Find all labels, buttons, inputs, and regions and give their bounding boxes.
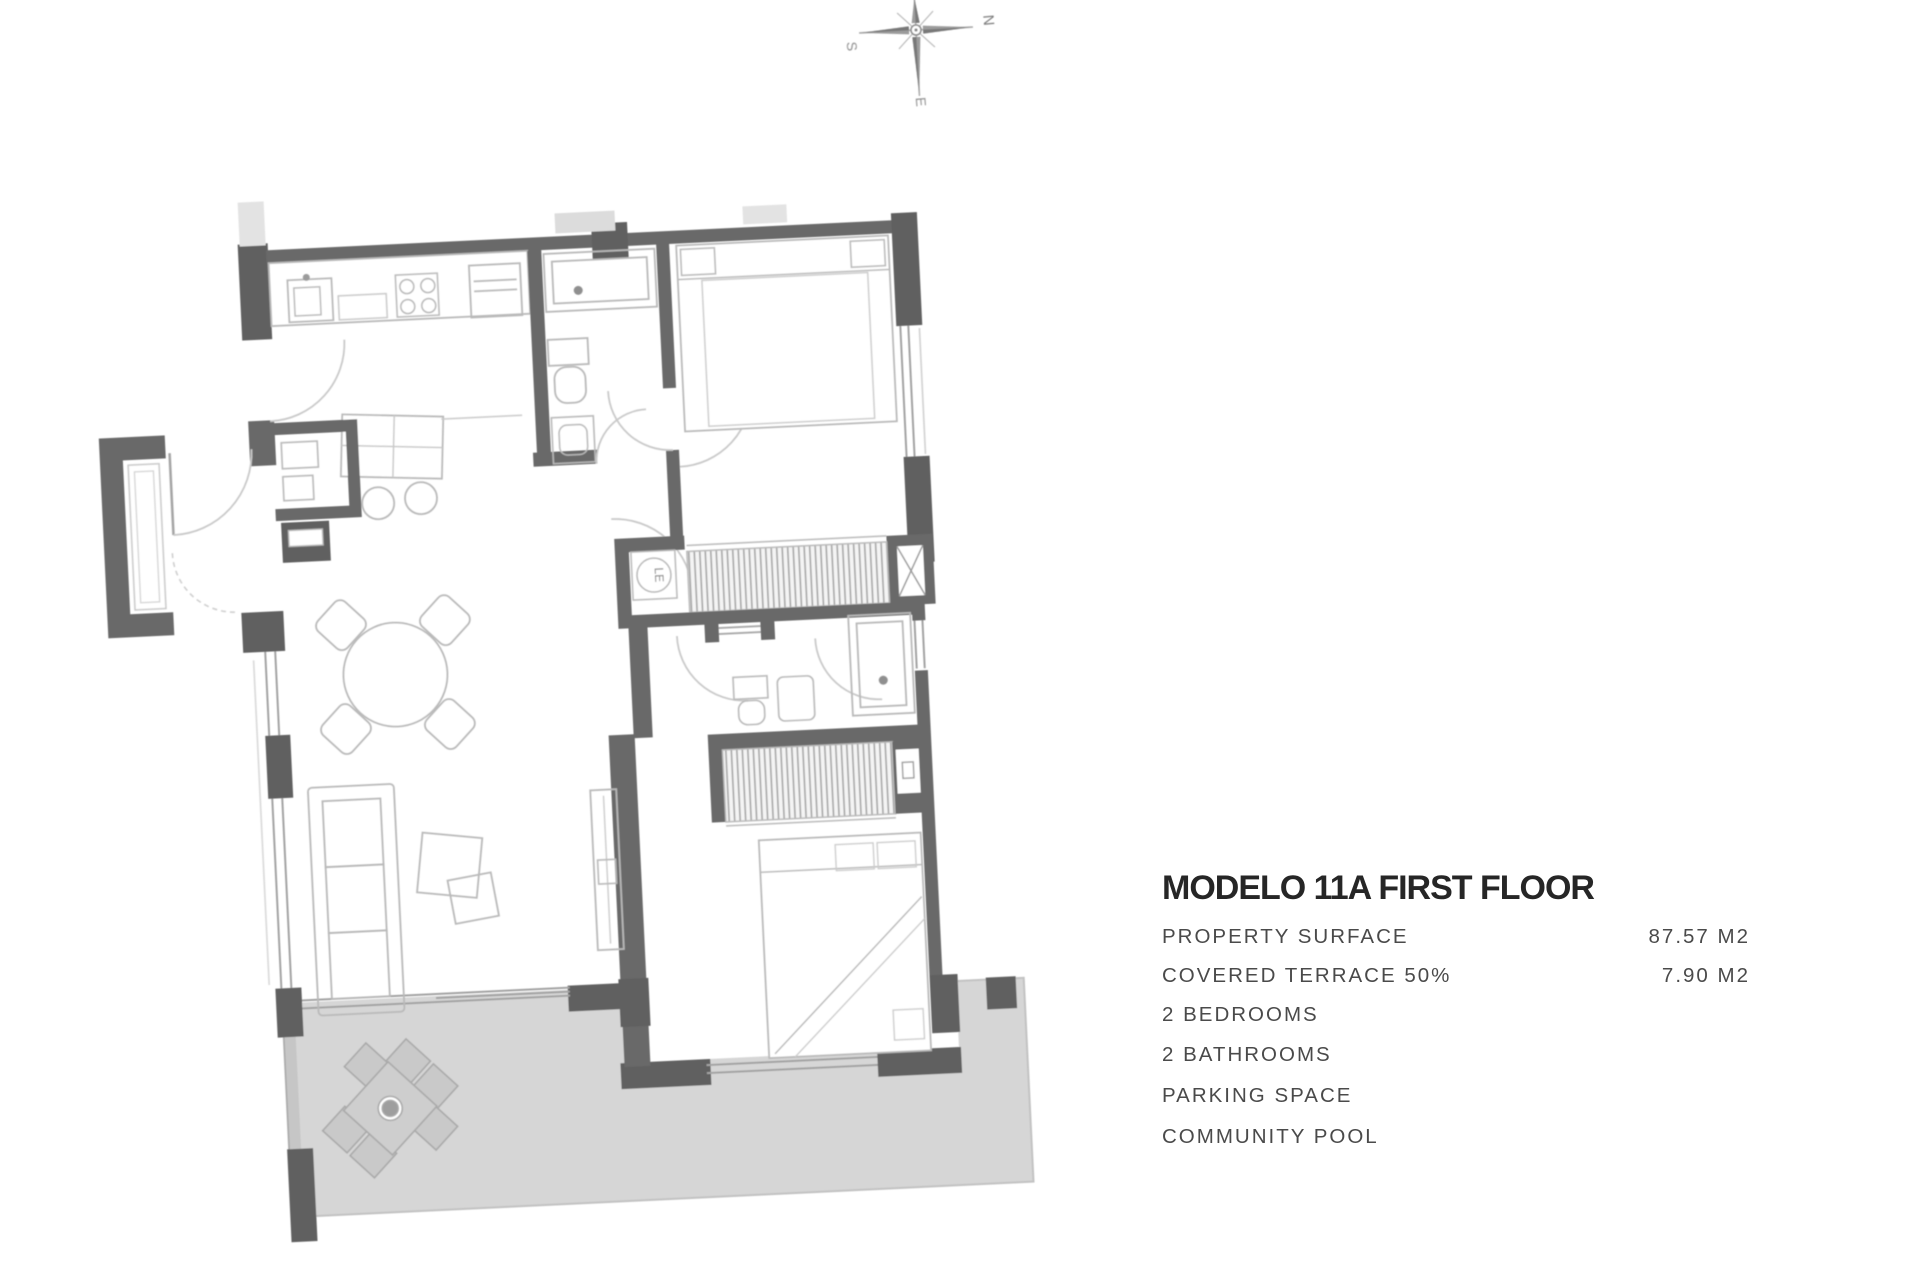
svg-text:MODELO 11A FIRST FLOOR: MODELO 11A FIRST FLOOR (1162, 869, 1594, 907)
svg-text:PARKING SPACE: PARKING SPACE (1162, 1084, 1352, 1107)
svg-text:2 BEDROOMS: 2 BEDROOMS (1162, 1003, 1319, 1026)
svg-text:PROPERTY SURFACE: PROPERTY SURFACE (1162, 925, 1409, 948)
svg-text:2 BATHROOMS: 2 BATHROOMS (1162, 1043, 1332, 1066)
svg-text:S: S (844, 41, 861, 52)
svg-text:87.57 M2: 87.57 M2 (1649, 925, 1750, 948)
svg-text:N: N (979, 14, 997, 26)
svg-text:COVERED TERRACE 50%: COVERED TERRACE 50% (1162, 964, 1451, 987)
svg-text:E: E (913, 96, 930, 107)
svg-text:LE: LE (651, 567, 666, 582)
svg-text:7.90 M2: 7.90 M2 (1662, 964, 1750, 987)
svg-text:COMMUNITY POOL: COMMUNITY POOL (1162, 1125, 1379, 1148)
